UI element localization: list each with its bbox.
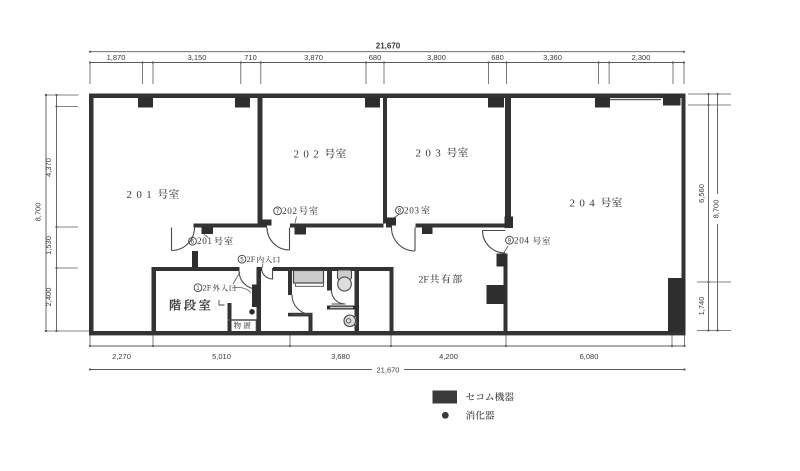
svg-text:2F: 2F — [247, 255, 256, 264]
svg-text:3,800: 3,800 — [427, 53, 446, 62]
svg-text:4,370: 4,370 — [44, 158, 53, 177]
svg-text:2: 2 — [416, 148, 422, 160]
svg-text:0: 0 — [303, 149, 309, 161]
svg-text:2: 2 — [127, 189, 133, 201]
svg-text:7: 7 — [276, 208, 280, 215]
svg-text:6,080: 6,080 — [580, 352, 599, 361]
svg-text:2: 2 — [570, 197, 576, 209]
svg-text:2F: 2F — [419, 275, 430, 286]
svg-text:3,680: 3,680 — [331, 352, 350, 361]
svg-text:2,270: 2,270 — [112, 352, 131, 361]
svg-text:6: 6 — [191, 238, 195, 245]
svg-text:3,360: 3,360 — [543, 53, 562, 62]
svg-text:2,400: 2,400 — [44, 288, 53, 307]
svg-text:1,870: 1,870 — [107, 53, 126, 62]
svg-text:2: 2 — [294, 149, 300, 161]
svg-text:1,530: 1,530 — [44, 236, 53, 255]
svg-text:21,670: 21,670 — [377, 366, 400, 375]
svg-text:0: 0 — [579, 197, 585, 209]
svg-text:2: 2 — [313, 149, 319, 161]
svg-text:202: 202 — [282, 206, 298, 216]
svg-text:5,010: 5,010 — [212, 352, 231, 361]
svg-text:201: 201 — [197, 236, 213, 246]
svg-text:1,740: 1,740 — [697, 297, 706, 316]
svg-text:1: 1 — [196, 285, 200, 292]
svg-text:4: 4 — [589, 197, 595, 209]
svg-text:680: 680 — [369, 53, 382, 62]
svg-text:9: 9 — [508, 237, 512, 244]
svg-text:0: 0 — [425, 148, 431, 160]
svg-text:1: 1 — [146, 189, 152, 201]
svg-text:204: 204 — [514, 236, 530, 246]
svg-text:3,870: 3,870 — [304, 53, 323, 62]
svg-text:6,560: 6,560 — [697, 184, 706, 203]
svg-text:3: 3 — [435, 148, 441, 160]
svg-text:4,200: 4,200 — [439, 352, 458, 361]
svg-text:2,300: 2,300 — [632, 53, 651, 62]
svg-text:203: 203 — [404, 205, 420, 215]
svg-text:0: 0 — [136, 189, 142, 201]
svg-text:710: 710 — [244, 53, 257, 62]
svg-text:8: 8 — [398, 208, 402, 215]
svg-text:8,700: 8,700 — [712, 200, 721, 219]
svg-text:8,700: 8,700 — [34, 203, 43, 222]
svg-text:21,670: 21,670 — [376, 41, 401, 50]
svg-text:3,150: 3,150 — [188, 53, 207, 62]
svg-text:680: 680 — [491, 53, 504, 62]
svg-text:5: 5 — [240, 256, 244, 263]
svg-text:2F: 2F — [203, 284, 212, 293]
